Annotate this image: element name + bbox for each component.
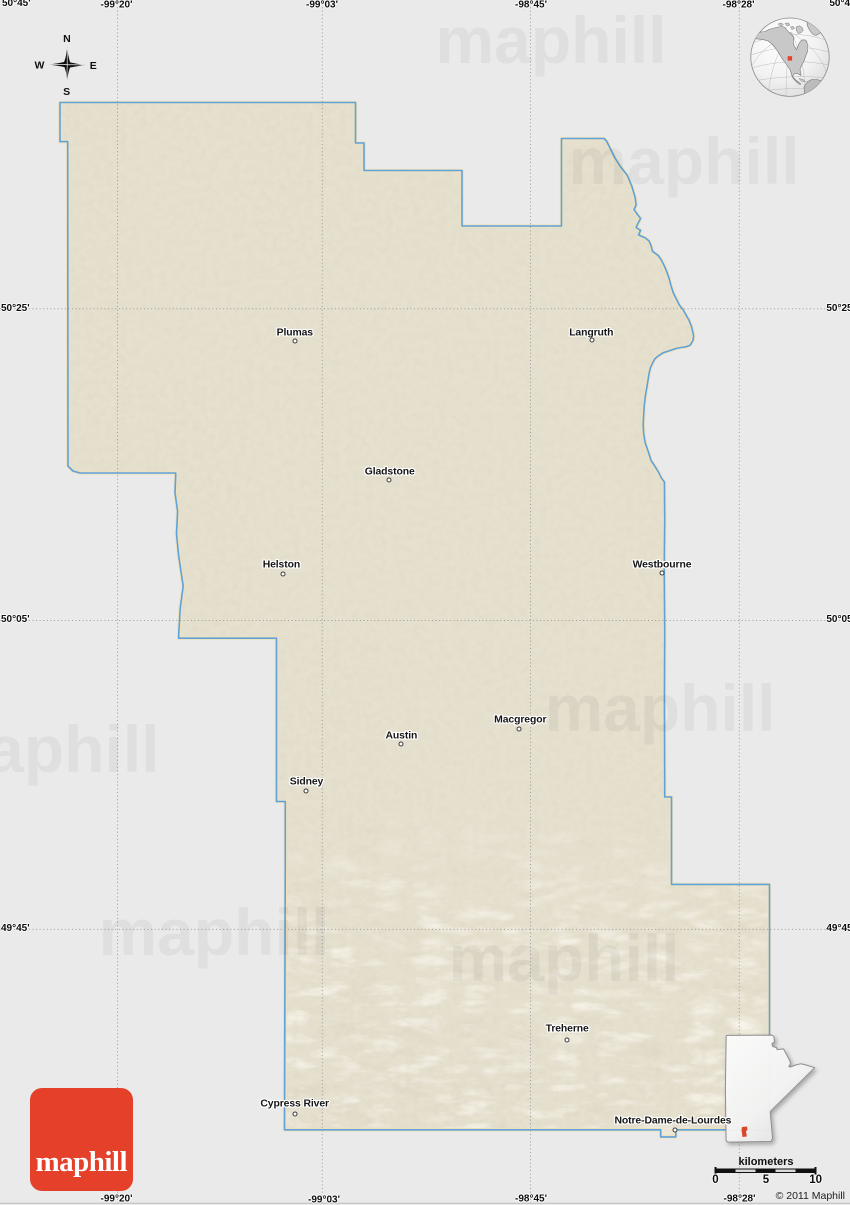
svg-text:W: W [35,59,45,71]
svg-text:S: S [63,86,70,98]
svg-text:E: E [90,60,97,72]
svg-text:N: N [63,33,71,45]
